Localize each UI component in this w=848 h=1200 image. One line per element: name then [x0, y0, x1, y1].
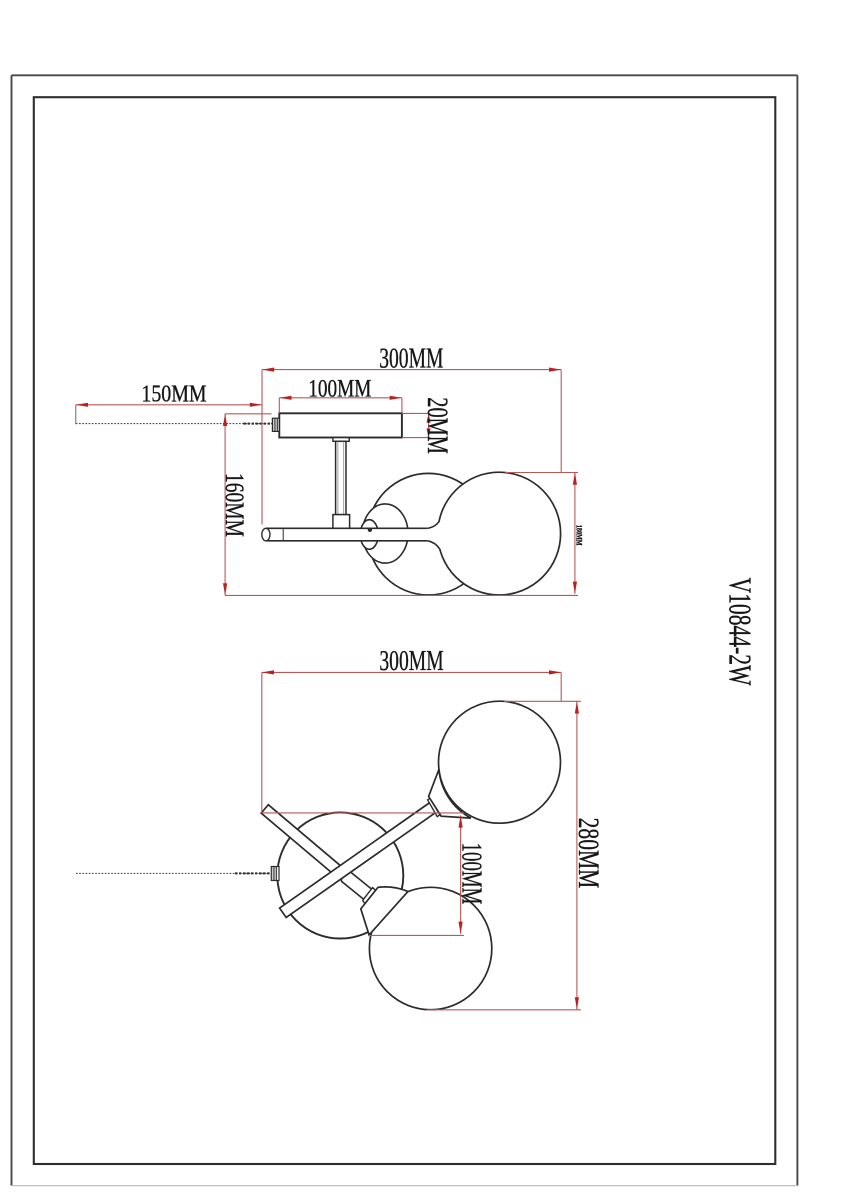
svg-text:160MM: 160MM	[219, 473, 249, 537]
svg-text:300MM: 300MM	[379, 646, 443, 677]
svg-text:100MM: 100MM	[308, 374, 371, 402]
svg-text:280MM: 280MM	[572, 818, 605, 889]
svg-text:150MM: 150MM	[141, 380, 206, 407]
svg-text:300MM: 300MM	[379, 343, 443, 374]
svg-text:100MM: 100MM	[455, 843, 487, 905]
svg-text:180MM: 180MM	[574, 525, 584, 546]
svg-text:V10844-2W: V10844-2W	[722, 578, 757, 686]
svg-text:20MM: 20MM	[421, 397, 455, 454]
